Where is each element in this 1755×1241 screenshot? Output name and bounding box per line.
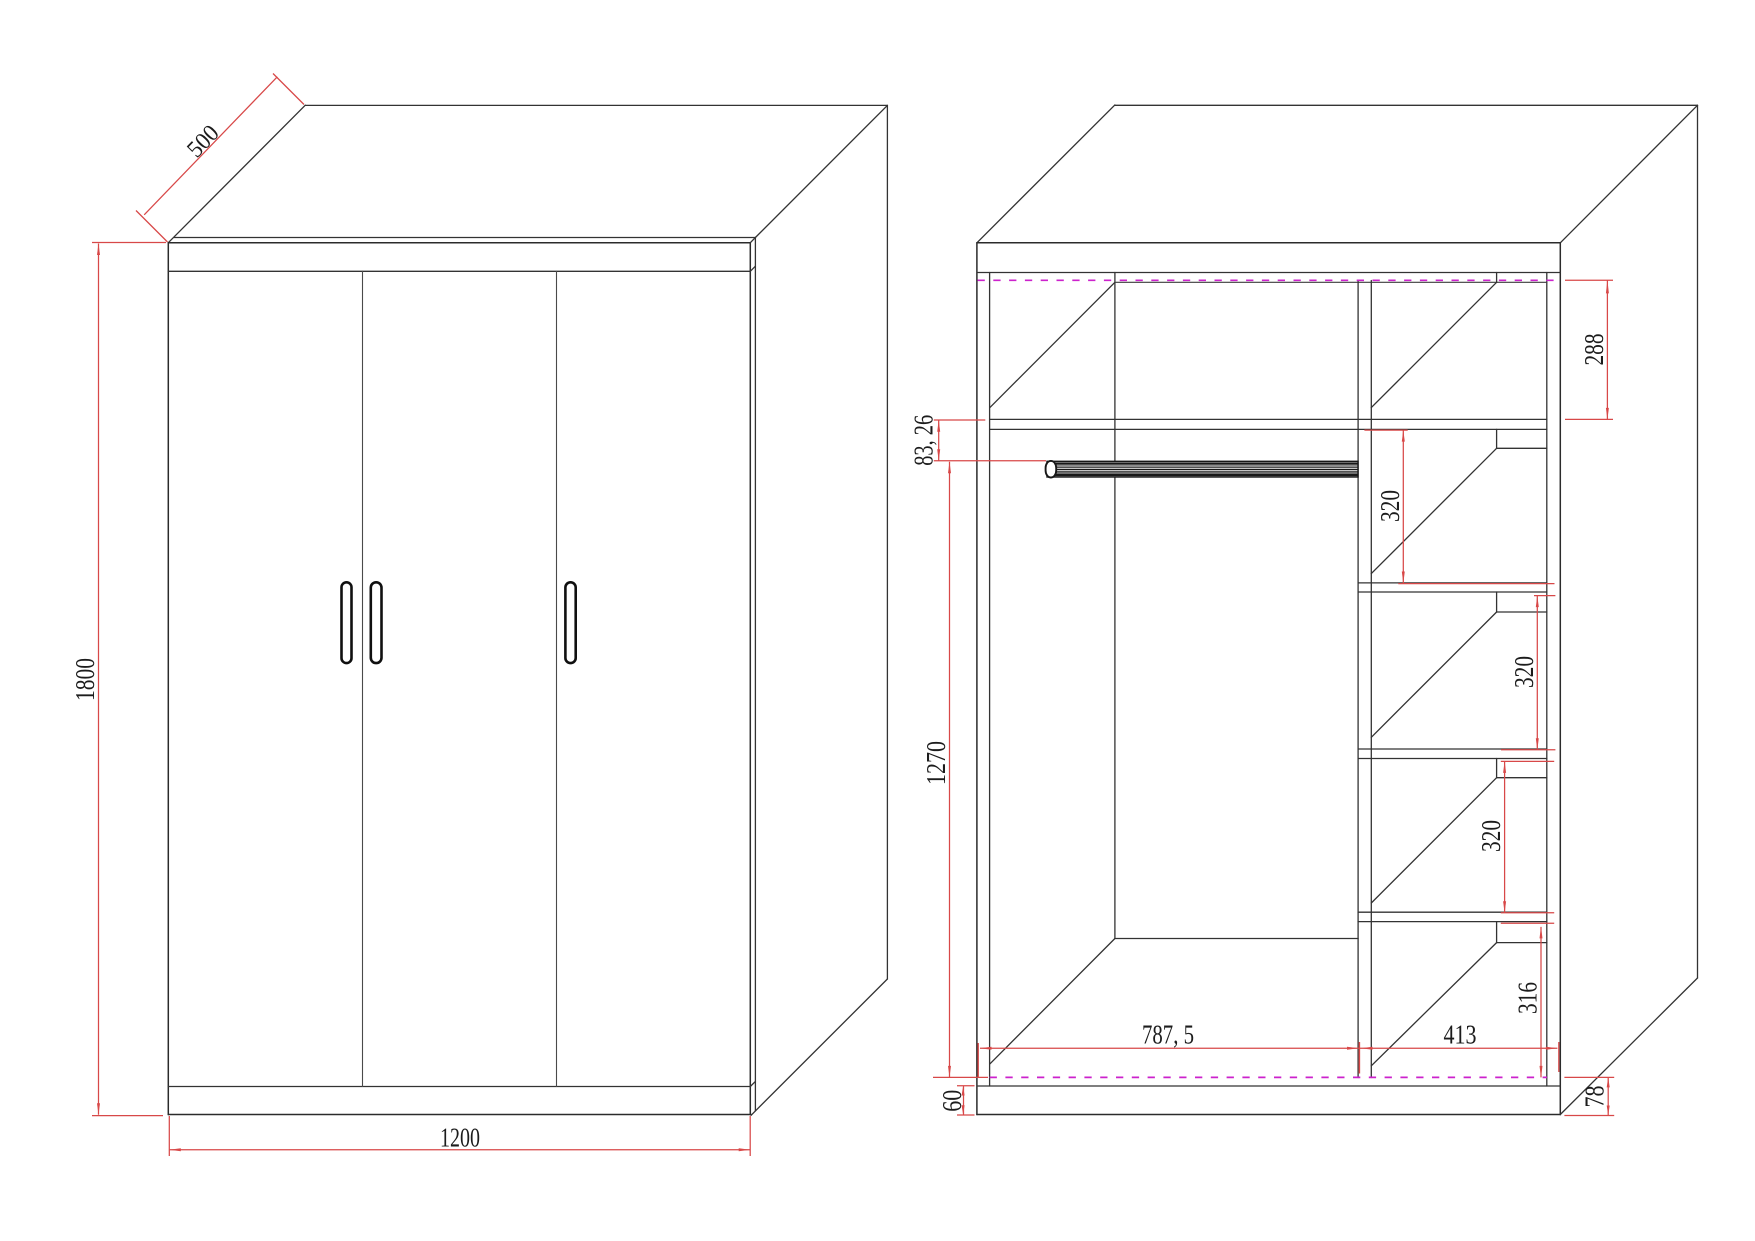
svg-text:316: 316 — [1513, 982, 1543, 1014]
svg-text:413: 413 — [1444, 1020, 1477, 1050]
svg-text:60: 60 — [937, 1090, 967, 1112]
svg-text:288: 288 — [1579, 334, 1609, 366]
svg-text:1800: 1800 — [70, 658, 100, 701]
svg-text:78: 78 — [1580, 1086, 1610, 1108]
svg-text:83, 26: 83, 26 — [909, 415, 939, 466]
svg-text:320: 320 — [1375, 490, 1405, 522]
svg-text:1200: 1200 — [440, 1123, 480, 1153]
svg-text:1270: 1270 — [921, 741, 951, 785]
svg-text:787, 5: 787, 5 — [1142, 1020, 1194, 1050]
svg-text:320: 320 — [1509, 656, 1539, 688]
svg-text:320: 320 — [1476, 820, 1506, 852]
